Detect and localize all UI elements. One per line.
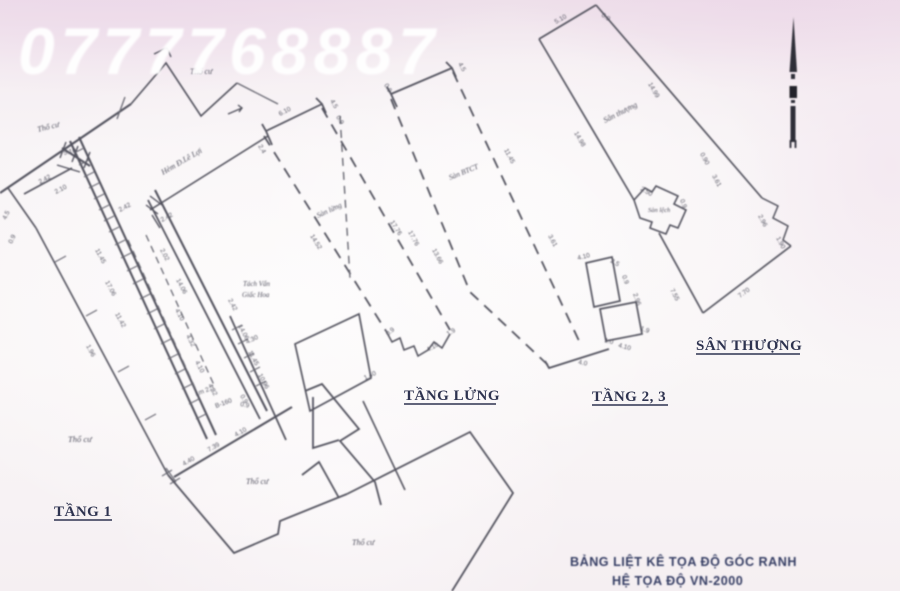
svg-text:3.61: 3.61 [710, 174, 722, 189]
svg-text:TẦNG LỬNG: TẦNG LỬNG [404, 387, 500, 404]
svg-text:4.10: 4.10 [426, 341, 441, 354]
svg-text:2.02: 2.02 [158, 248, 170, 263]
svg-text:2.96: 2.96 [756, 214, 768, 229]
svg-text:4.5: 4.5 [456, 62, 467, 74]
svg-text:0.9: 0.9 [678, 198, 688, 209]
svg-text:14.52: 14.52 [308, 233, 323, 251]
svg-text:6.10: 6.10 [278, 106, 293, 118]
svg-text:2.4: 2.4 [256, 144, 267, 156]
svg-text:0.9: 0.9 [334, 115, 345, 127]
svg-text:0.9: 0.9 [620, 274, 630, 285]
svg-text:4.0: 4.0 [578, 359, 588, 368]
svg-text:17.76: 17.76 [406, 230, 420, 248]
svg-text:3.61: 3.61 [546, 234, 558, 249]
svg-text:Thổ cư: Thổ cư [352, 538, 375, 547]
svg-text:BẢNG LIỆT KÊ TỌA ĐỘ GÓC RANH: BẢNG LIỆT KÊ TỌA ĐỘ GÓC RANH [570, 554, 797, 569]
svg-text:2.50: 2.50 [639, 186, 654, 199]
svg-text:4.32: 4.32 [184, 334, 196, 349]
svg-text:11.42: 11.42 [113, 312, 127, 330]
svg-text:1.9: 1.9 [446, 327, 458, 338]
svg-text:Sàn lửng: Sàn lửng [315, 200, 343, 220]
svg-text:4.5: 4.5 [328, 99, 339, 111]
svg-text:7.55: 7.55 [668, 288, 680, 303]
svg-text:1.96: 1.96 [84, 344, 96, 359]
svg-text:TẦNG 2, 3: TẦNG 2, 3 [592, 388, 666, 405]
svg-text:2.10: 2.10 [54, 183, 69, 195]
svg-text:4.10: 4.10 [617, 342, 631, 352]
svg-text:4.5: 4.5 [1, 209, 11, 220]
svg-text:HỆ TỌA ĐỘ VN-2000: HỆ TỌA ĐỘ VN-2000 [612, 573, 743, 588]
svg-text:SÂN THƯỢNG: SÂN THƯỢNG [696, 337, 802, 354]
svg-text:1.0: 1.0 [603, 337, 614, 346]
svg-text:Thổ cư: Thổ cư [246, 477, 269, 486]
svg-text:B-160: B-160 [214, 397, 233, 410]
svg-text:4.10: 4.10 [577, 252, 591, 262]
svg-text:2.42: 2.42 [38, 173, 53, 185]
svg-text:Thổ cư: Thổ cư [36, 120, 60, 134]
svg-text:2.5: 2.5 [609, 258, 621, 269]
svg-text:7.70: 7.70 [737, 286, 752, 299]
svg-text:14.99: 14.99 [646, 82, 660, 100]
svg-text:0.9: 0.9 [7, 233, 17, 244]
svg-text:Hẻm Đ.Lê Lợi: Hẻm Đ.Lê Lợi [159, 146, 204, 177]
svg-text:5.10: 5.10 [554, 13, 569, 26]
svg-text:0.9: 0.9 [385, 326, 397, 337]
svg-text:Sàn BTCT: Sàn BTCT [447, 162, 480, 182]
svg-text:0777768887: 0777768887 [18, 14, 440, 88]
svg-text:Thổ cư: Thổ cư [68, 434, 93, 444]
svg-text:1.90: 1.90 [774, 236, 786, 251]
svg-text:0.90: 0.90 [698, 152, 710, 167]
svg-text:7.39: 7.39 [207, 441, 222, 454]
svg-text:2.42: 2.42 [226, 298, 238, 313]
svg-text:11.45: 11.45 [502, 148, 516, 166]
svg-text:1.40: 1.40 [363, 370, 378, 382]
svg-text:13.66: 13.66 [430, 248, 444, 266]
svg-text:Sàn lệch: Sàn lệch [648, 207, 670, 214]
svg-text:TẦNG 1: TẦNG 1 [54, 503, 112, 520]
svg-text:Tách Vẩn: Tách Vẩn [243, 280, 271, 288]
svg-text:2.42: 2.42 [118, 201, 133, 213]
svg-text:4.10: 4.10 [193, 360, 205, 375]
svg-text:10.96: 10.96 [256, 373, 270, 391]
svg-text:Sân thượng: Sân thượng [602, 100, 639, 125]
svg-text:0.9: 0.9 [240, 401, 250, 410]
svg-text:11.45: 11.45 [93, 248, 107, 266]
svg-text:Giấc Hoa: Giấc Hoa [242, 291, 270, 299]
svg-text:17.06: 17.06 [103, 280, 117, 298]
svg-text:14.98: 14.98 [572, 131, 586, 149]
svg-text:4.10: 4.10 [173, 308, 185, 323]
svg-text:14.06: 14.06 [174, 278, 188, 296]
svg-text:2.96: 2.96 [631, 292, 642, 307]
